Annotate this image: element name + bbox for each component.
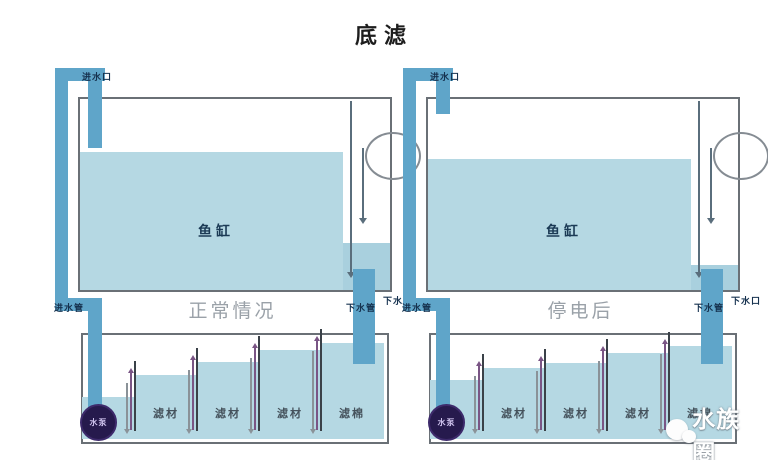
diagram-normal: 鱼缸 下水口 进水口 进水管 下水管 正常情况 滤材 滤材 滤材 滤棉 水泵 <box>40 60 400 452</box>
page-title: 底滤 <box>0 18 768 50</box>
tank-label: 鱼缸 <box>198 221 234 241</box>
water-pump: 水泵 <box>80 404 117 441</box>
overflow-drainpipe <box>710 148 712 218</box>
diagram-canvas: 底滤 鱼缸 下水口 进水口 进水管 下水管 正常情况 滤材 <box>0 0 768 460</box>
sump-baffle <box>598 339 610 433</box>
inlet-pipe-label: 进水管 <box>54 301 84 314</box>
diagram-caption: 正常情况 <box>140 296 325 323</box>
drain-pipe-vertical <box>701 269 723 364</box>
chamber-label: 滤材 <box>270 405 310 421</box>
overflow-standpipe <box>350 101 352 272</box>
water-pump: 水泵 <box>428 404 465 441</box>
fish-tank: 鱼缸 下水口 <box>78 97 392 292</box>
sump-baffle <box>312 329 324 433</box>
watermark: 水族圈 <box>666 400 748 460</box>
watermark-cat-logo-icon <box>666 417 692 451</box>
overflow-standpipe <box>698 101 700 272</box>
sump-baffle <box>536 349 548 433</box>
drain-pipe-label: 下水管 <box>694 301 724 314</box>
overflow-drainpipe <box>362 148 364 218</box>
chamber-label: 滤材 <box>556 405 596 421</box>
inlet-pipe-label: 进水管 <box>402 301 432 314</box>
inlet-pipe-to-pump <box>88 298 102 416</box>
diagram-caption: 停电后 <box>488 296 673 323</box>
inlet-port-label: 进水口 <box>82 70 112 83</box>
sump-baffle <box>126 361 138 433</box>
watermark-text: 水族圈 <box>692 400 748 460</box>
inlet-port-label: 进水口 <box>430 70 460 83</box>
sump-baffle <box>250 336 262 433</box>
inlet-pipe-vertical <box>55 68 68 311</box>
sump-baffle <box>474 354 486 433</box>
overflow-circle-annotation <box>713 132 768 180</box>
inlet-pipe-to-pump <box>436 298 450 416</box>
drain-port-label: 下水口 <box>731 294 761 307</box>
chamber-label: 滤材 <box>494 405 534 421</box>
drain-pipe-vertical <box>353 269 375 364</box>
inlet-pipe-vertical <box>403 68 416 311</box>
chamber-label: 滤材 <box>618 405 658 421</box>
tank-label: 鱼缸 <box>546 221 582 241</box>
fish-tank: 鱼缸 下水口 <box>426 97 740 292</box>
sump-baffle <box>188 348 200 433</box>
drain-pipe-label: 下水管 <box>346 301 376 314</box>
chamber-label: 滤材 <box>146 405 186 421</box>
diagram-power-off: 鱼缸 下水口 进水口 进水管 下水管 停电后 滤材 滤材 滤材 滤棉 水泵 水族… <box>388 60 748 452</box>
chamber-label: 滤棉 <box>332 405 372 421</box>
chamber-label: 滤材 <box>208 405 248 421</box>
